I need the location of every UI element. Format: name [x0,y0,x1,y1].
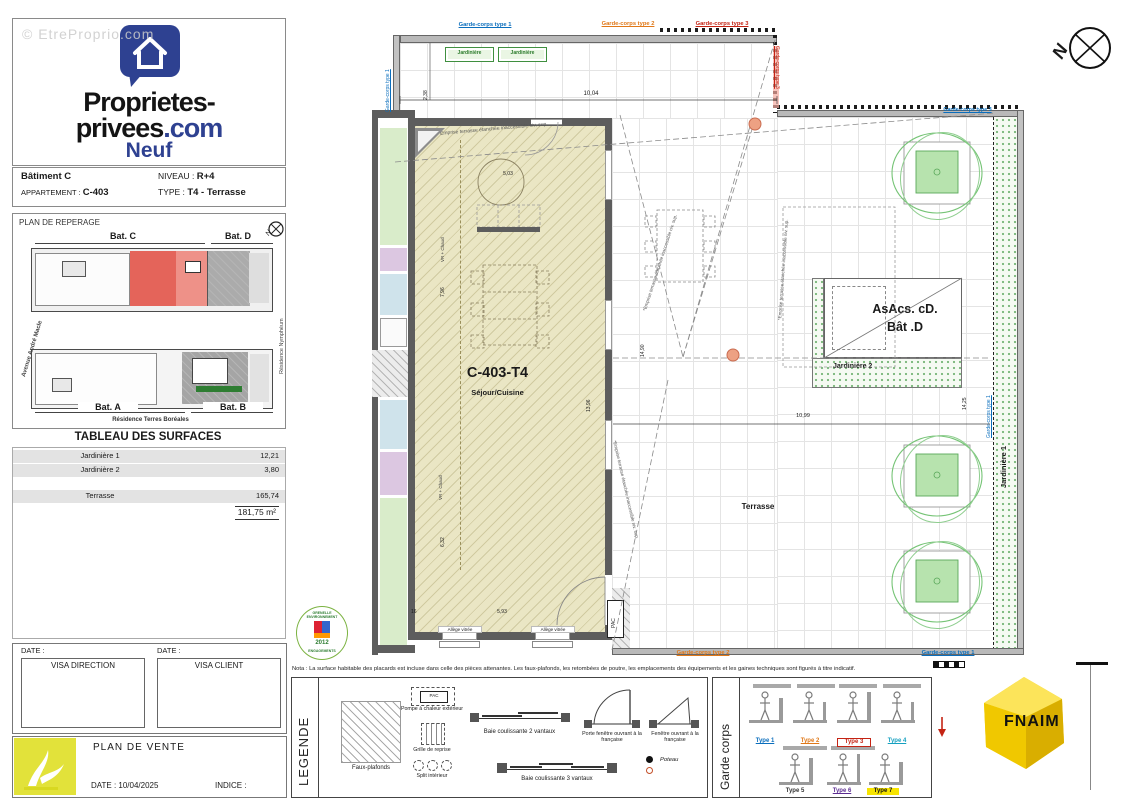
window-sill [532,641,573,648]
jardiniere-box: Jardinière [445,47,494,62]
surfaces-row: Jardinière 1 12,21 [13,450,285,463]
garde-corps-label: Garde-corps type 1 [440,22,530,29]
faux-plafonds-label: Faux-plafonds [333,765,409,772]
legende-title: LEGENDE [297,717,312,786]
pac-symbol: PAC [411,687,455,706]
porte-fenetre-symbol [582,686,642,728]
poteau-label: Poteau [660,757,678,764]
grenelle-bottom-text: ENGAGEMENTS [301,649,343,653]
garde-corps-type-label: Type 6 [826,788,858,795]
fenetre-symbol [648,692,700,728]
chaud-label: VR + Chaud [438,475,443,500]
info-type-label: TYPE : [158,187,185,197]
garde-corps-label: Garde-corps type 1 [987,380,993,438]
apartment-window-right [605,150,612,200]
reperage-unit-highlight [130,251,176,306]
reperage-box: PLAN DE REPERAGE N Bat. C Bat. D [12,213,286,429]
dim-label: 6,32 [441,537,447,547]
info-niveau-value: R+4 [197,171,215,182]
unit-info-box: Bâtiment C NIVEAU : R+4 APPARTEMENT : C-… [12,167,286,207]
faux-plafond-dashed-line [460,140,462,570]
asacs-inner-dashed [832,286,886,350]
jardiniere-box-label: Jardinière [446,51,493,57]
plan-vente-indice: INDICE : [215,781,247,790]
logo-line3: Neuf [13,139,285,163]
grenelle-year: 2012 [297,640,347,647]
floor-plan: PAC Jardinière Jardinière AsAcs. cD. Bât… [290,10,1035,660]
faux-plafonds-symbol [341,701,401,763]
visa-box: DATE : VISA DIRECTION DATE : VISA CLIENT [12,643,287,734]
garde-corps-type-label: Type 2 [794,738,826,745]
reperage-building-ab [31,349,273,409]
dim-label: 13,96 [587,399,593,412]
reperage-green-bar [196,386,242,392]
surfaces-title: TABLEAU DES SURFACES [12,431,284,444]
baie2-symbol [470,711,570,723]
reperage-street-bottom: Résidence Terres Boréales [58,417,243,424]
baie3-label: Baie coulissante 3 vantaux [492,776,622,783]
red-arrow-icon [936,716,948,738]
dim-label: 14,90 [641,344,647,357]
reperage-street-right: Résidence Nymphéum [279,282,285,374]
plan-vente-title: PLAN DE VENTE [93,742,185,754]
dim-label: 7,96 [441,287,447,297]
dim-label: 16 [411,610,417,616]
architect-logo-mark [14,738,76,795]
reperage-building-cd [31,248,273,312]
neighbour-room [380,274,407,315]
garde-corps-label: Garde-corps type 3 [678,21,766,28]
apartment-window-right [605,300,612,350]
wall-top-left [393,35,400,118]
surfaces-box: Jardinière 1 12,21 Jardinière 2 3,80 Ter… [12,447,286,639]
grenelle-logo: GRENELLE ENVIRONNEMENT 2012 ENGAGEMENTS [296,606,348,660]
apartment-wall-bottom [408,632,612,640]
garde-corps-label: Garde-corps type 2 [663,650,743,657]
surfaces-total: 181,75 m² [235,506,279,520]
fenetre-label: Fenêtre ouvrant à la française [644,731,706,743]
garde-corps-label: Garde-corps type 1 [386,50,392,112]
pompe-label: Pompe à chaleur extérieur [399,706,465,712]
baie3-symbol [497,761,617,773]
visa-client-box: VISA CLIENT [157,658,281,728]
room-label: Séjour/Cuisine [450,389,545,398]
surface-value: 165,74 [256,492,279,501]
reperage-bat-b: Bat. B [203,402,263,412]
jardiniere1-strip [993,117,1018,650]
plan-vente-date: DATE : 10/04/2025 [91,781,158,790]
wall-left-top [372,110,415,118]
reperage-title: PLAN DE REPERAGE [19,218,100,227]
surface-label: Jardinière 1 [13,452,187,461]
allege-label: Allège vitrée [531,626,575,633]
plan-vente-box: PLAN DE VENTE DATE : 10/04/2025 INDICE : [12,736,287,798]
neighbour-room [380,318,407,347]
grenelle-top-text: GRENELLE ENVIRONNEMENT [301,611,343,619]
info-appartement-value: C-403 [83,187,109,198]
info-type-value: T4 - Terrasse [187,187,245,198]
garde-corps-label: Garde-corps type 3 [773,46,779,108]
pac-symbol-label: PAC [421,693,447,698]
unit-label: C-403-T4 [440,365,555,382]
visa-direction-title: VISA DIRECTION [22,661,144,670]
wall-left-bottom [372,645,415,653]
pac-unit-label: PAC [612,618,618,628]
chaud-label: VR + Chaud [440,237,445,262]
info-niveau-label: NIVEAU : [158,171,194,181]
fnaim-wordmark: FNAIM [1004,713,1060,731]
garde-corps-label: Garde-corps type 2 [583,21,673,28]
grille-symbol [421,723,445,745]
dim-label: 14,25 [963,397,969,410]
legende-box: LEGENDE Faux-plafonds PAC Pompe à chaleu… [291,677,708,798]
emprise-dotted-edge-top [660,28,777,32]
garde-corps-label: Garde-corps type 1 [908,650,988,657]
garde-corps-type-label: Type 3 [837,738,871,747]
architect-logo [14,738,76,795]
garde-corps-type-label: Type 5 [779,788,811,795]
fnaim-panel: FNAIM [956,665,1091,790]
reperage-bat-d: Bat. D [213,231,263,241]
watermark: © EtreProprio.com [22,26,154,42]
neighbour-room [380,452,407,495]
terrasse-label: Terrasse [723,502,793,511]
apartment-window-bottom [442,632,477,640]
garde-corps-title: Garde corps [719,724,733,790]
garde-corps-type-label: Type 4 [881,738,913,745]
reperage-bat-c: Bat. C [93,231,153,241]
surfaces-row: Terrasse 165,74 [13,490,285,503]
nota-text: Nota : La surface habitable des placards… [292,666,957,673]
info-batiment: Bâtiment C [21,172,71,183]
plan-page: © EtreProprio.com Proprietes- privees.co… [0,0,1131,800]
surface-label: Terrasse [13,492,187,501]
wall-top-strip [400,35,777,43]
asacs-label-line2: Bât .D [850,320,960,334]
neighbour-room [380,128,407,245]
mini-compass-icon: N [265,219,285,239]
split-label: Split intérieur [401,773,463,779]
apartment-window-bottom [535,632,570,640]
surfaces-row: Jardinière 2 3,80 [13,464,285,477]
visa-date-client-label: DATE : [157,647,181,656]
jardiniere2-label: Jardinière 2 [833,363,872,371]
dim-label: 10,99 [782,413,824,419]
neighbour-room [380,248,407,271]
visa-date-direction-label: DATE : [21,647,45,656]
grille-label: Grille de reprise [399,747,465,753]
garde-corps-label: Garde-corps type 3 [930,107,1005,113]
surface-label: Jardinière 2 [13,466,187,475]
info-appartement-label: APPARTEMENT : [21,188,81,197]
neighbour-room [380,498,407,645]
dim-label: 5,03 [490,172,526,178]
reperage-bat-a: Bat. A [78,402,138,412]
poteau-symbol-black [646,756,653,763]
poteau-symbol-red [646,767,653,774]
apartment-wall-left [408,118,415,632]
visa-direction-box: VISA DIRECTION [21,658,145,728]
apartment-window-right [605,420,612,470]
terrace-mid [612,118,777,648]
window-sill [439,641,480,648]
neighbour-room [380,400,407,449]
split-symbol [411,758,453,771]
dim-label: 5,93 [484,610,520,616]
visa-client-title: VISA CLIENT [158,661,280,670]
allege-label: Allège vitrée [438,626,482,633]
wall-right [1017,110,1024,655]
garde-corps-type-label: Type 7 [867,788,899,795]
surface-value: 3,80 [264,466,279,475]
garde-corps-box: Garde corps [712,677,932,798]
jardiniere-box-label: Jardinière [499,51,546,57]
jardiniere-box: Jardinière [498,47,547,62]
dim-label: 2,38 [424,90,430,100]
baie2-label: Baie coulissante 2 vantaux [457,729,582,736]
jardiniere1-label: Jardinière 1 [1000,408,1009,488]
garde-corps-type-label: Type 1 [749,738,781,745]
porte-label: Porte fenêtre ouvrant à la française [572,731,652,743]
dim-label: 10,04 [570,91,612,98]
asacs-label-line1: AsAcs. cD. [850,302,960,316]
surface-value: 12,21 [260,452,279,461]
